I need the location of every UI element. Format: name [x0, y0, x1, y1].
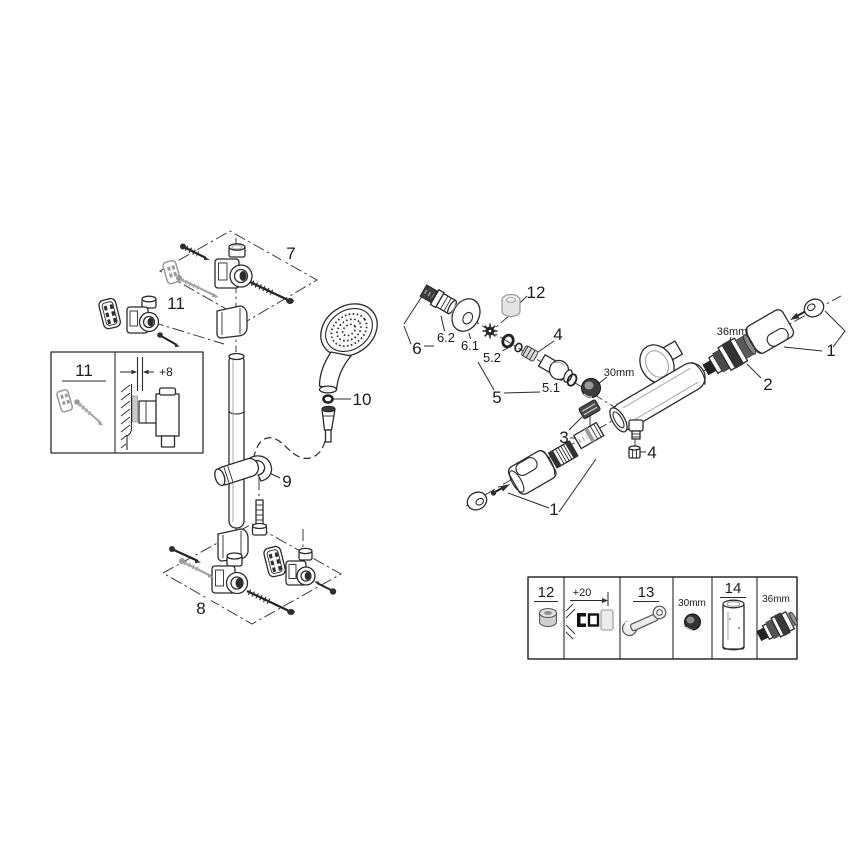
legend-cell-30mm: [685, 614, 701, 630]
nut-30mm: [582, 379, 601, 398]
plug-cap-icon: [540, 609, 557, 627]
part6-label: 6: [412, 339, 421, 358]
part11-plug-and-screw: [162, 260, 219, 298]
part1-bottom-group: [464, 441, 578, 513]
legend-label-30mm: 30mm: [678, 598, 706, 609]
slider-screw: [253, 500, 267, 535]
part7-wall-bracket: [180, 244, 294, 305]
nut-size-label: 30mm: [604, 367, 635, 379]
legend-cell-14: [720, 598, 746, 650]
part4-top-label: 4: [553, 325, 562, 344]
part9-label: 9: [282, 472, 291, 491]
legend-label-13: 13: [638, 584, 655, 601]
check-valve: [574, 423, 604, 449]
handle-cap-right: [801, 296, 827, 321]
mounting-screw-long-bottom: [247, 591, 295, 615]
bracket11-axis: [152, 322, 224, 344]
legend-label-12: 12: [538, 584, 555, 601]
part5-label: 5: [492, 388, 501, 407]
part2-label: 2: [763, 375, 772, 394]
glider-screw: [157, 332, 180, 347]
part1-right-label: 1: [826, 341, 835, 360]
inset-detail-box: [51, 352, 203, 453]
shower-hose: [253, 406, 335, 461]
legend-box: [528, 577, 801, 659]
legend-label-36mm: 36mm: [762, 594, 790, 605]
nut-icon: [685, 614, 701, 630]
part6-1-label: 6.1: [461, 338, 479, 353]
wall-dowel: [98, 297, 122, 329]
part11-label: 11: [167, 294, 185, 313]
exploded-parts-diagram: 7 11 10 9 8 11 +8 6 6.2 6.1 12 4 5.2 5 5…: [0, 0, 868, 868]
mounting-screw-long: [250, 282, 294, 304]
inset-offset-dimension: +8: [159, 365, 173, 379]
part12-axis: [495, 315, 510, 328]
part4-bottom-label: 4: [647, 443, 656, 462]
filter-screen: [521, 345, 539, 362]
cartridge-size-label: 36mm: [717, 326, 748, 338]
extension-sleeve-icon: [723, 600, 744, 650]
shower-rail-assembly: [51, 244, 387, 616]
part7-label: 7: [286, 244, 295, 263]
inset-part11-label: 11: [75, 361, 93, 380]
rail-clamp-top: [217, 306, 247, 338]
part6-group: [419, 283, 485, 336]
washer-small: [514, 342, 523, 352]
hand-shower: [311, 293, 388, 393]
part5-2-label: 5.2: [483, 350, 501, 365]
thermostat-mixer-assembly: [419, 283, 827, 513]
part5-1-label: 5.1: [542, 380, 560, 395]
shower-rail: [229, 354, 244, 529]
body-outlet: [629, 420, 643, 439]
part12-plug: [502, 295, 520, 317]
handle-cap-bottom: [464, 489, 490, 514]
part8-label: 8: [196, 599, 205, 618]
retaining-clip: [578, 399, 600, 419]
part6-2-label: 6.2: [437, 330, 455, 345]
part10-label: 10: [353, 390, 372, 409]
shower-handle: [320, 352, 352, 390]
center-lines: [152, 231, 841, 624]
part3-group: [574, 399, 604, 448]
diagram-svg: 7 11 10 9 8 11 +8 6 6.2 6.1 12 4 5.2 5 5…: [0, 0, 868, 868]
glider-bracket-bottom-right: [286, 548, 336, 594]
part1-bottom-label: 1: [549, 500, 558, 519]
part4-aerator-bottom: [629, 446, 640, 458]
star-washer: [483, 324, 498, 339]
part10-oring: [324, 396, 333, 403]
oring-large: [501, 333, 515, 348]
part3-label: 3: [559, 428, 568, 447]
legend-label-14: 14: [725, 580, 742, 597]
part12-label: 12: [527, 283, 546, 302]
legend-label-plus20: +20: [573, 587, 592, 599]
wall-dowel-bottom: [263, 545, 287, 577]
